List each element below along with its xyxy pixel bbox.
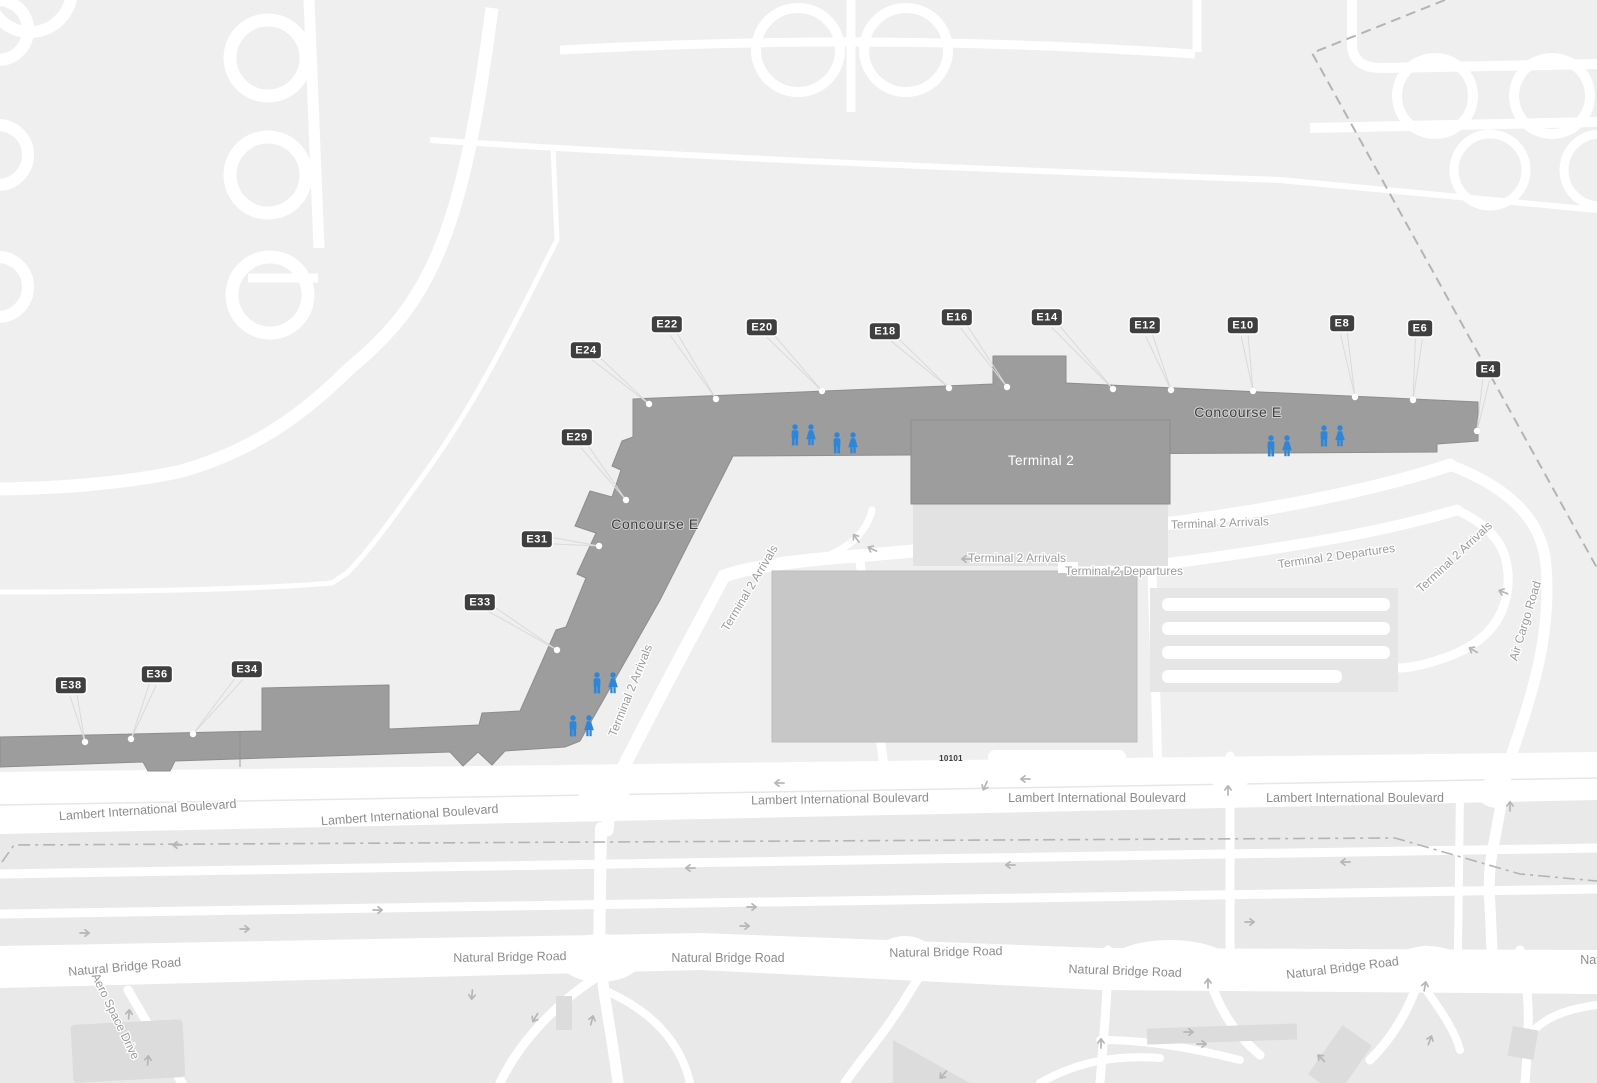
gate-badge-e10: E10: [1228, 317, 1258, 333]
gate-badge-e8: E8: [1330, 315, 1354, 331]
gate-badge-e22: E22: [652, 316, 682, 332]
parking-garage: [772, 571, 1137, 742]
building-label: Concourse E: [611, 516, 699, 532]
road-label: Lambert International Boulevard: [1266, 791, 1444, 805]
gate-badge-e33: E33: [465, 594, 495, 610]
gate-badge-e24: E24: [571, 342, 601, 358]
gate-badge-e18: E18: [870, 323, 900, 339]
gate-badge-e29: E29: [562, 429, 592, 445]
road-label: Nat: [1580, 953, 1597, 967]
gate-badge-e14: E14: [1032, 309, 1062, 325]
gate-badge-e36: E36: [142, 666, 172, 682]
gate-badge-e6: E6: [1408, 320, 1432, 336]
gate-badge-e31: E31: [522, 531, 552, 547]
map-canvas[interactable]: Concourse EConcourse ETerminal 210101Ter…: [0, 0, 1597, 1083]
gate-badge-e12: E12: [1130, 317, 1160, 333]
gate-badge-e38: E38: [56, 677, 86, 693]
building-label: Terminal 2: [1008, 453, 1074, 468]
gate-badge-e34: E34: [232, 661, 262, 677]
gate-badge-e16: E16: [942, 309, 972, 325]
road-label: Natural Bridge Road: [889, 944, 1003, 960]
gate-badge-e20: E20: [747, 319, 777, 335]
airport-terminal-map[interactable]: Concourse EConcourse ETerminal 210101Ter…: [0, 0, 1597, 1083]
road-label: Lambert International Boulevard: [1008, 791, 1186, 805]
building-label: Concourse E: [1194, 404, 1282, 420]
road-label: Natural Bridge Road: [453, 949, 567, 965]
road-label: Terminal 2 Arrivals: [968, 551, 1066, 565]
road-label: 10101: [939, 754, 963, 763]
gate-badge-e4: E4: [1476, 361, 1500, 377]
road-label: Natural Bridge Road: [671, 951, 784, 965]
road-label: Terminal 2 Departures: [1065, 564, 1183, 578]
